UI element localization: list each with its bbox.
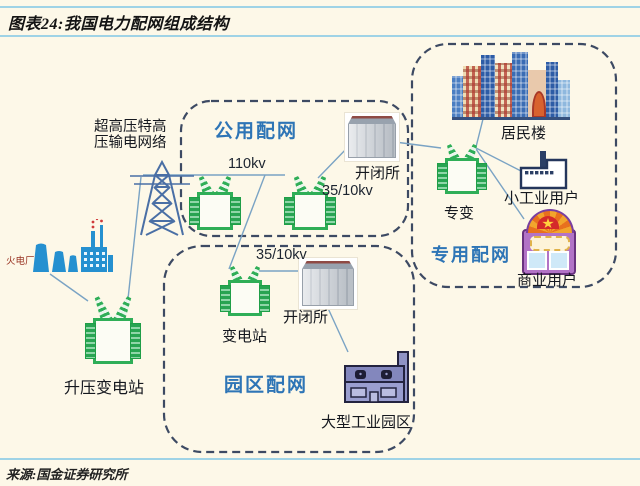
- small-industrial-label: 小工业用户: [504, 187, 579, 208]
- kiosk-body: [302, 269, 354, 306]
- park-network-label: 园区配网: [224, 370, 308, 397]
- voltage-35-10kv-park-label: 35/10kv: [256, 247, 307, 263]
- church-building: [528, 70, 547, 118]
- small-industrial-icon: [519, 150, 569, 190]
- building: [452, 76, 463, 118]
- stepup-substation-label: 升压变电站: [64, 374, 144, 398]
- figure-card: 图表24:我国电力配网组成结构: [0, 0, 640, 486]
- public-switch-station-label: 开闭所: [355, 162, 400, 183]
- commercial-user-icon: [522, 209, 574, 273]
- thermal-plant-icon: [31, 219, 113, 273]
- building: [512, 52, 527, 118]
- park-substation-label: 变电站: [222, 325, 267, 346]
- shop-window: [549, 251, 569, 270]
- building: [463, 66, 481, 118]
- dedicated-transformer-icon: [445, 144, 479, 194]
- dedicated-network-label: 专用配网: [431, 241, 511, 267]
- commercial-user-label: 商业用户: [517, 269, 577, 290]
- building: [558, 80, 570, 118]
- public-switch-station-icon: [345, 113, 399, 161]
- shop-sign: [530, 236, 570, 251]
- stepup-transformer-icon: [93, 296, 133, 364]
- residential-building-label: 居民楼: [501, 122, 546, 143]
- park-switch-station-label: 开闭所: [283, 306, 328, 327]
- dedicated-transformer-label: 专变: [444, 202, 474, 223]
- kiosk-body: [348, 124, 396, 158]
- uhv-grid-label: 超高压特高压输电网络: [94, 119, 169, 151]
- thermal-plant-label: 火电厂: [6, 253, 35, 267]
- park-substation-icon: [228, 266, 262, 316]
- kiosk-roof: [302, 261, 354, 269]
- industrial-park-label: 大型工业园区: [321, 411, 411, 432]
- industrial-park-icon: [343, 350, 413, 404]
- building: [495, 63, 512, 118]
- church-arch: [532, 91, 547, 118]
- public-transformer-110-icon: [197, 176, 233, 230]
- public-network-label: 公用配网: [214, 116, 298, 143]
- voltage-35-10kv-public-label: 35/10kv: [322, 183, 373, 199]
- building: [546, 62, 557, 118]
- kiosk-roof: [348, 116, 396, 124]
- voltage-110kv-label: 110kv: [228, 156, 266, 172]
- transmission-tower-icon: [128, 159, 196, 237]
- building: [481, 55, 495, 118]
- shop-window: [527, 251, 547, 270]
- residential-buildings-icon: [452, 50, 570, 118]
- park-switch-station-icon: [299, 258, 357, 309]
